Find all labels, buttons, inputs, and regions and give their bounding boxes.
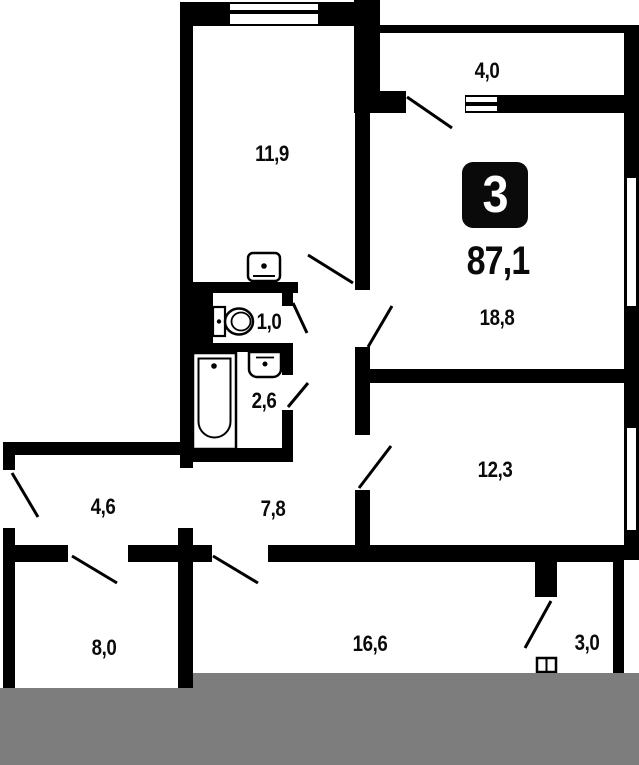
area-label-hall-7-8: 7,8 — [261, 498, 286, 520]
room-count-badge-text: 3 — [482, 169, 508, 221]
wall-bath-right-b — [282, 410, 293, 448]
bathtub-icon — [193, 353, 236, 449]
wall-bath-right-a — [282, 352, 293, 375]
door-room-upper-left — [308, 255, 353, 283]
area-label-balcony-3-0: 3,0 — [575, 632, 600, 654]
area-label-room-18-8: 18,8 — [480, 307, 515, 329]
door-entrance — [12, 473, 38, 517]
door-room-8-0 — [72, 556, 117, 583]
wall-south-seg2 — [128, 545, 212, 562]
window-right-upper — [627, 178, 636, 306]
door-room-12-3 — [359, 446, 391, 488]
area-label-room-8-0: 8,0 — [92, 637, 117, 659]
wall-balcony-right — [613, 560, 624, 673]
total-area-label: 87,1 — [467, 241, 530, 281]
wall-entry-cap — [3, 442, 15, 470]
crop-bar — [0, 673, 639, 765]
wall-column — [354, 0, 380, 113]
shaft-block — [192, 282, 213, 345]
window-loggia-mullion — [466, 102, 497, 106]
wall-column-ext — [380, 91, 406, 113]
crop-bar-step — [193, 673, 639, 688]
window-top-pane1 — [230, 4, 318, 10]
wall-corridor-b — [355, 347, 370, 435]
wall-lower-divider — [178, 528, 193, 688]
wall-wc-top — [213, 282, 298, 293]
wall-wc-bath — [192, 343, 293, 352]
door-loggia-4-0 — [407, 97, 452, 128]
door-wc — [293, 303, 307, 333]
window-right-lower — [627, 428, 636, 530]
wall-south-seg3 — [268, 545, 624, 562]
window-top-pane2 — [230, 14, 318, 24]
wall-south-seg1 — [3, 545, 68, 562]
wall-hall-top — [3, 442, 182, 455]
door-room-16-6 — [213, 556, 258, 583]
area-label-hall-4-6: 4,6 — [91, 496, 116, 518]
door-balcony-3-0 — [525, 601, 551, 648]
area-label-wc-1-0: 1,0 — [257, 311, 282, 333]
floor-plan: 11,9 4,0 18,8 1,0 2,6 12,3 4,6 7,8 8,0 1… — [0, 0, 639, 765]
wall-corridor-a — [355, 113, 370, 290]
room-count-badge: 3 — [462, 162, 528, 228]
wall-wc-right-stub — [282, 293, 293, 306]
crop-bar-main — [0, 688, 639, 765]
balcony-window-icon — [537, 658, 556, 672]
area-label-room-11-9: 11,9 — [255, 143, 289, 165]
wall-balcony-stub — [535, 562, 557, 597]
toilet-icon — [213, 307, 253, 336]
walls — [3, 0, 639, 690]
area-label-bath-2-6: 2,6 — [252, 390, 277, 412]
area-label-room-12-3: 12,3 — [478, 459, 513, 481]
door-bath — [288, 383, 308, 407]
area-label-room-16-6: 16,6 — [353, 633, 388, 655]
door-room-18-8 — [368, 306, 392, 347]
washer-icon — [248, 253, 280, 281]
wall-left-upper — [180, 2, 193, 468]
wall-mid-right — [355, 369, 639, 383]
wall-corridor-c — [355, 490, 370, 545]
area-label-loggia-4-0: 4,0 — [475, 60, 500, 82]
sink-icon — [249, 352, 281, 377]
wall-loggia-top — [378, 25, 639, 33]
